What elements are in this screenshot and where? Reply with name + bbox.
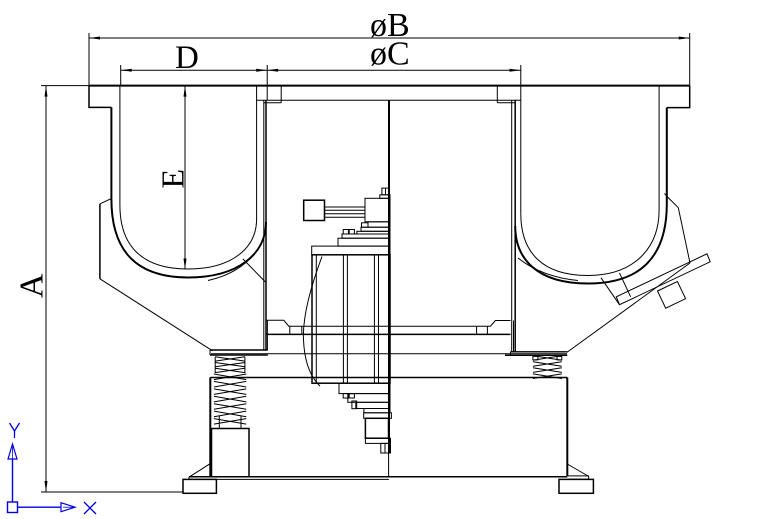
svg-text:øC: øC: [370, 36, 410, 73]
svg-text:E: E: [155, 169, 191, 189]
svg-text:A: A: [14, 273, 51, 298]
svg-text:D: D: [175, 40, 199, 76]
